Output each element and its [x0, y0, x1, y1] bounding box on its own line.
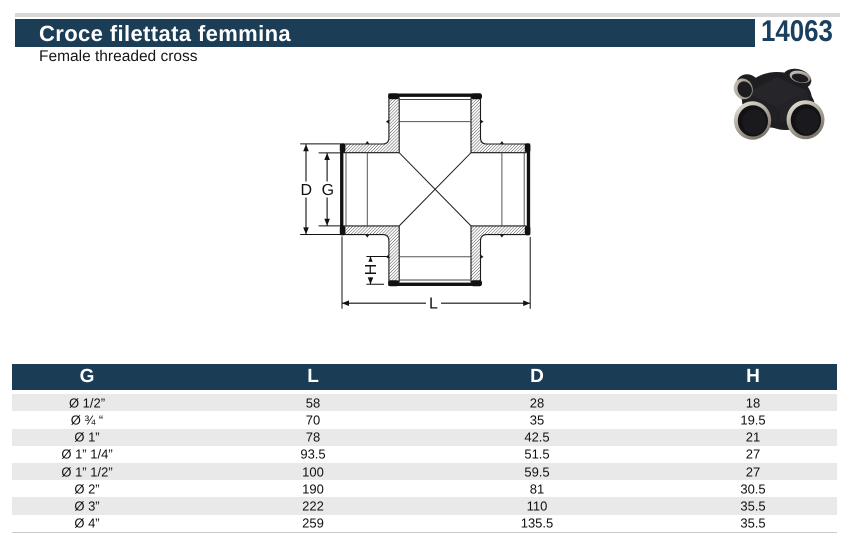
svg-text:L: L [429, 296, 438, 313]
svg-text:G: G [322, 182, 334, 199]
svg-text:H: H [363, 264, 380, 276]
svg-text:D: D [301, 182, 313, 199]
